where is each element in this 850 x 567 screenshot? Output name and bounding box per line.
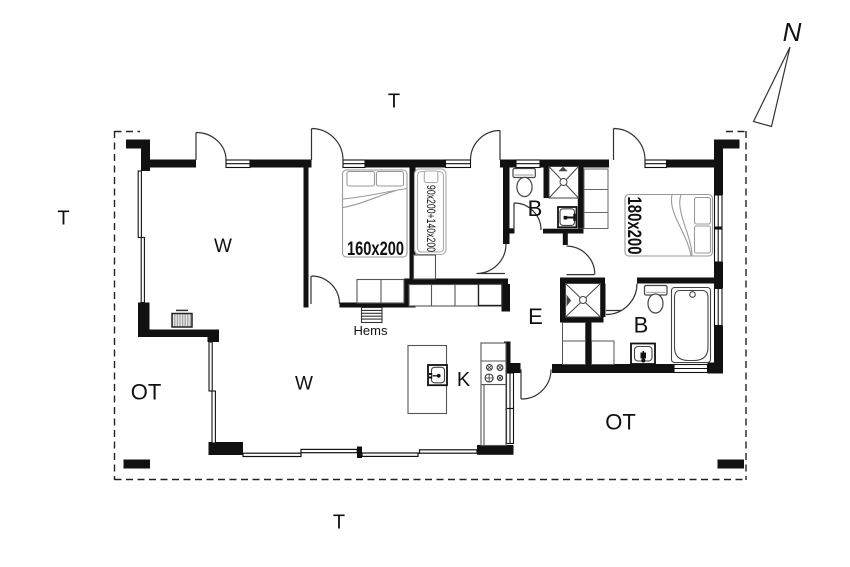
svg-text:OT: OT bbox=[605, 410, 636, 435]
svg-text:OT: OT bbox=[131, 380, 162, 405]
svg-text:T: T bbox=[388, 91, 400, 113]
svg-text:90x200+140x200: 90x200+140x200 bbox=[424, 185, 438, 252]
svg-text:W: W bbox=[214, 236, 232, 257]
svg-text:K: K bbox=[457, 369, 471, 391]
svg-text:N: N bbox=[783, 17, 802, 47]
svg-text:T: T bbox=[57, 208, 69, 230]
svg-text:B: B bbox=[634, 313, 649, 338]
svg-text:B: B bbox=[528, 196, 543, 221]
svg-text:160x200: 160x200 bbox=[347, 239, 404, 260]
svg-text:E: E bbox=[528, 304, 543, 329]
svg-text:T: T bbox=[333, 512, 345, 534]
svg-text:Hems: Hems bbox=[354, 323, 388, 338]
svg-text:180x200: 180x200 bbox=[623, 197, 644, 255]
svg-text:W: W bbox=[295, 374, 313, 395]
